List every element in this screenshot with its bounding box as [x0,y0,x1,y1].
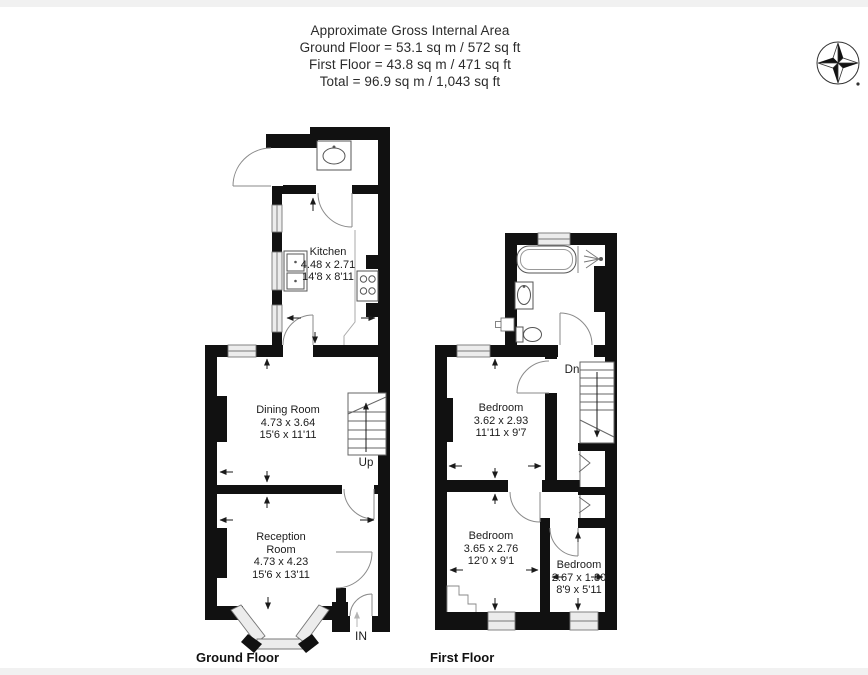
bedroom2-label: Bedroom 3.65 x 2.76 12'0 x 9'1 [441,530,541,568]
bedroom3-label: Bedroom 2.67 x 1.80 8'9 x 5'11 [534,559,624,597]
reception-room-label: Reception Room 4.73 x 4.23 15'6 x 13'11 [244,531,318,581]
bay-window [231,605,329,653]
cupboard-doors [579,451,590,518]
first-floor-title: First Floor [430,650,494,665]
bathtub-icon [517,246,576,273]
compass-icon [817,42,860,86]
toilet-icon [516,327,542,342]
stairs-up [348,393,386,455]
ground-floor-title: Ground Floor [196,650,279,665]
bedroom1-label: Bedroom 3.62 x 2.93 11'11 x 9'7 [451,402,551,440]
floorplan-page: Approximate Gross Internal Area Ground F… [0,0,868,675]
front-door [350,594,372,616]
entrance-in-label: IN [346,629,376,643]
wc-basin-icon [317,141,351,170]
washbasin-icon [515,282,533,309]
stairs-down-label: Dn [558,364,586,376]
dining-room-label: Dining Room 4.73 x 3.64 15'6 x 11'11 [238,404,338,442]
floorplan-drawing [0,0,868,675]
kitchen-label: Kitchen 4.48 x 2.71 14'8 x 8'11 [278,246,378,284]
stairs-up-label: Up [352,457,380,469]
bedroom2-step-feature [447,586,476,612]
radiator-icon [496,318,515,331]
